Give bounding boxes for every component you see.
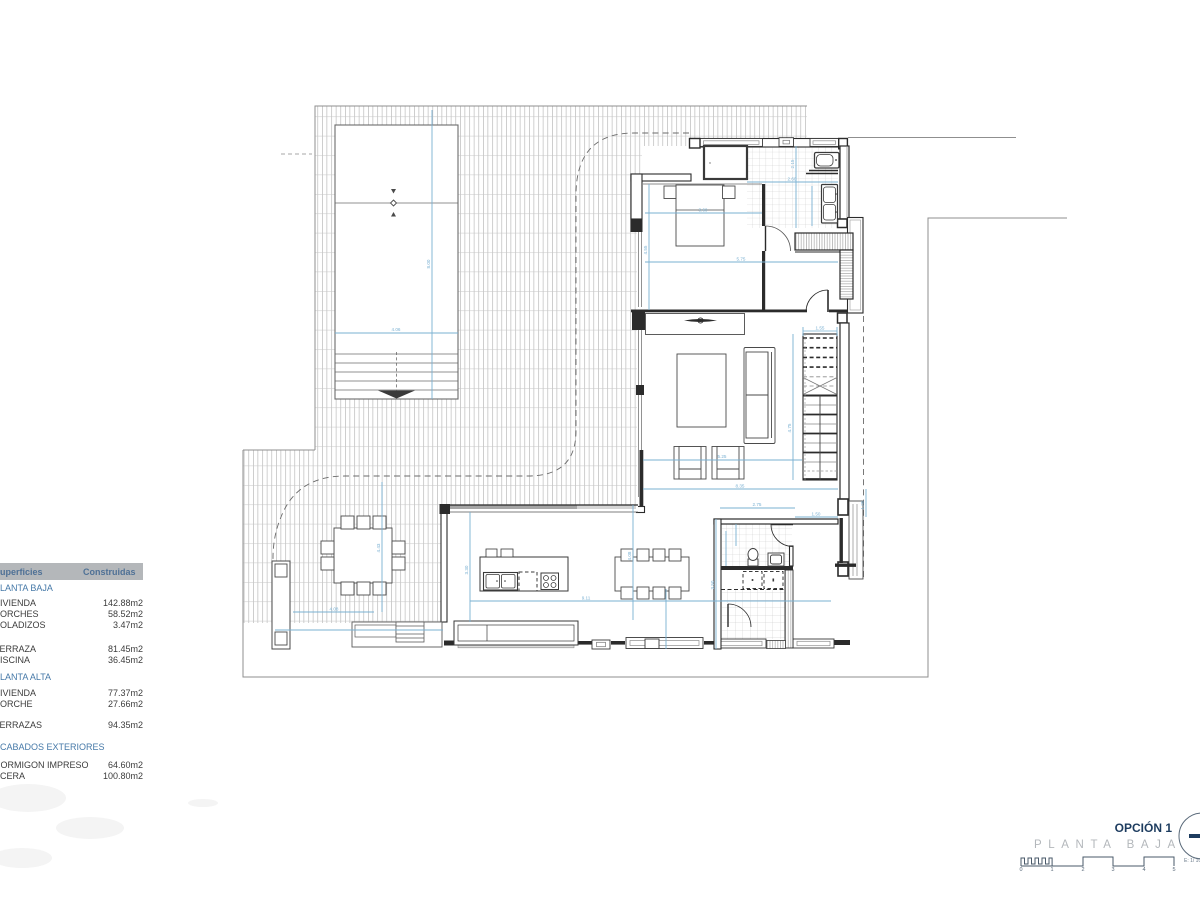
svg-text:5.75: 5.75 xyxy=(737,257,746,262)
svg-text:ACABADOS EXTERIORES: ACABADOS EXTERIORES xyxy=(0,742,105,752)
svg-text:4.06: 4.06 xyxy=(392,327,401,332)
svg-text:4.08: 4.08 xyxy=(627,551,632,560)
svg-text:3: 3 xyxy=(1111,867,1114,873)
svg-text:3.60: 3.60 xyxy=(699,208,708,213)
svg-text:Construidas: Construidas xyxy=(83,567,136,577)
svg-text:VIVIENDA: VIVIENDA xyxy=(0,688,36,698)
svg-text:27.66m2: 27.66m2 xyxy=(108,699,143,709)
svg-text:TERRAZAS: TERRAZAS xyxy=(0,720,42,730)
svg-text:4.75: 4.75 xyxy=(787,423,792,432)
svg-text:3.50: 3.50 xyxy=(710,580,715,589)
svg-text:E: 1/ 100: E: 1/ 100 xyxy=(1184,858,1200,864)
svg-text:58.52m2: 58.52m2 xyxy=(108,609,143,619)
svg-text:ACERA: ACERA xyxy=(0,771,25,781)
svg-text:36.45m2: 36.45m2 xyxy=(108,655,143,665)
svg-text:5.25: 5.25 xyxy=(718,454,727,459)
svg-text:1.55: 1.55 xyxy=(816,326,825,331)
svg-text:2.60: 2.60 xyxy=(788,177,797,182)
svg-text:81.45m2: 81.45m2 xyxy=(108,644,143,654)
svg-text:PLANTA BAJA: PLANTA BAJA xyxy=(1034,839,1182,851)
svg-text:5: 5 xyxy=(1172,867,1175,873)
svg-text:8.35: 8.35 xyxy=(736,484,745,489)
svg-text:3.47m2: 3.47m2 xyxy=(113,620,143,630)
svg-text:2.75: 2.75 xyxy=(753,502,762,507)
svg-text:1: 1 xyxy=(1050,867,1053,873)
svg-text:x: x xyxy=(709,160,711,165)
svg-text:142.88m2: 142.88m2 xyxy=(103,598,143,608)
svg-text:9.11: 9.11 xyxy=(582,596,591,601)
svg-text:VOLADIZOS: VOLADIZOS xyxy=(0,620,46,630)
svg-text:8.00: 8.00 xyxy=(426,259,431,268)
svg-text:Superficies: Superficies xyxy=(0,567,43,577)
svg-text:OPCIÓN 1: OPCIÓN 1 xyxy=(1115,820,1173,835)
svg-text:PORCHE: PORCHE xyxy=(0,699,33,709)
svg-text:PLANTA BAJA: PLANTA BAJA xyxy=(0,583,53,593)
svg-text:64.60m2: 64.60m2 xyxy=(108,760,143,770)
svg-text:77.37m2: 77.37m2 xyxy=(108,688,143,698)
svg-text:3.30: 3.30 xyxy=(464,565,469,574)
svg-text:4.55: 4.55 xyxy=(643,245,648,254)
svg-text:HORMIGON IMPRESO: HORMIGON IMPRESO xyxy=(0,760,89,770)
svg-text:1.05: 1.05 xyxy=(860,500,865,509)
svg-text:0: 0 xyxy=(1019,867,1022,873)
svg-text:2.15: 2.15 xyxy=(790,159,795,168)
svg-text:PORCHES: PORCHES xyxy=(0,609,39,619)
svg-text:94.35m2: 94.35m2 xyxy=(108,720,143,730)
svg-text:PISCINA: PISCINA xyxy=(0,655,30,665)
svg-text:4: 4 xyxy=(1142,867,1145,873)
svg-text:1.50: 1.50 xyxy=(812,512,821,517)
svg-text:2: 2 xyxy=(1081,867,1084,873)
svg-text:4.43: 4.43 xyxy=(376,543,381,552)
svg-text:100.80m2: 100.80m2 xyxy=(103,771,143,781)
svg-text:TERRAZA: TERRAZA xyxy=(0,644,36,654)
svg-text:4.08: 4.08 xyxy=(330,607,339,612)
svg-text:PLANTA ALTA: PLANTA ALTA xyxy=(0,672,51,682)
svg-text:VIVIENDA: VIVIENDA xyxy=(0,598,36,608)
